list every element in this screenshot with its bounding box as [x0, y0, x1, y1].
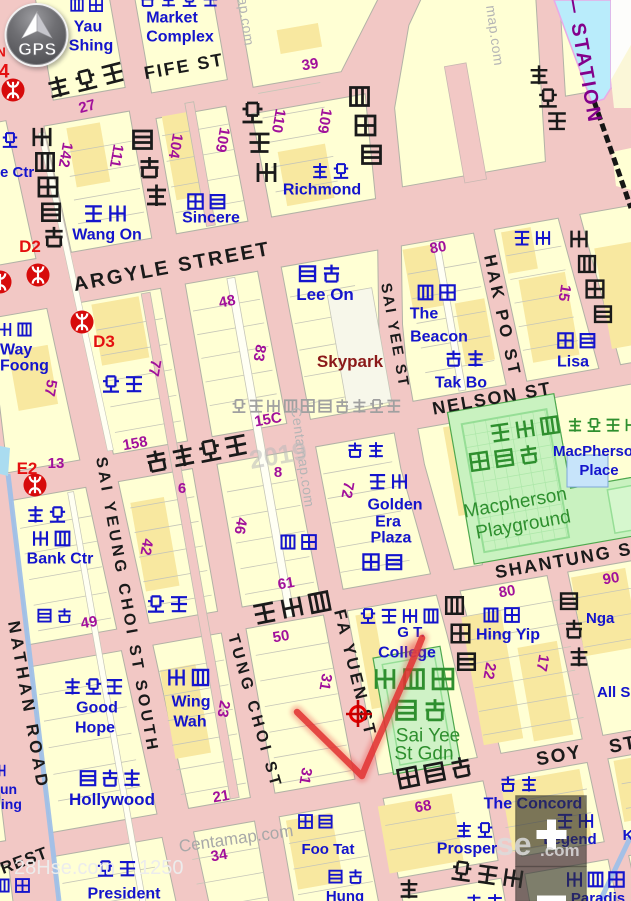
svg-text:Way: Way	[0, 342, 32, 359]
svg-text:57: 57	[40, 378, 60, 397]
svg-text:Market: Market	[146, 10, 198, 27]
svg-text:49: 49	[79, 613, 98, 633]
svg-text:Wing: Wing	[172, 694, 211, 711]
svg-text:D3: D3	[93, 332, 115, 351]
svg-text:Nga: Nga	[586, 610, 615, 627]
svg-text:Shing: Shing	[69, 38, 113, 55]
svg-text:Place: Place	[579, 462, 618, 479]
svg-text:Complex: Complex	[146, 29, 214, 46]
svg-text:Hollywood: Hollywood	[69, 790, 155, 809]
svg-text:ST: ST	[607, 732, 631, 758]
svg-text:un: un	[0, 781, 17, 797]
svg-text:Yau: Yau	[74, 19, 102, 36]
svg-text:ling: ling	[0, 796, 22, 812]
svg-text:Beacon: Beacon	[410, 329, 468, 346]
svg-text:Sincere: Sincere	[182, 210, 240, 227]
svg-text:Bank Ctr: Bank Ctr	[27, 551, 94, 568]
svg-text:80: 80	[428, 238, 447, 258]
svg-text:E2: E2	[17, 459, 38, 478]
svg-text:.com: .com	[540, 841, 580, 860]
svg-text:46: 46	[230, 516, 250, 535]
svg-text:Lee On: Lee On	[296, 285, 354, 304]
svg-text:Foo Tat: Foo Tat	[301, 841, 354, 858]
svg-text:K: K	[623, 827, 631, 844]
svg-text:6: 6	[178, 480, 186, 497]
svg-text:Wah: Wah	[173, 714, 206, 731]
svg-text:42: 42	[136, 537, 156, 556]
svg-text:se: se	[496, 826, 532, 862]
svg-text:39: 39	[300, 55, 319, 75]
svg-text:48: 48	[217, 292, 237, 312]
svg-text:31: 31	[295, 766, 315, 785]
svg-text:All S: All S	[597, 684, 630, 701]
svg-text:Hung: Hung	[326, 888, 364, 901]
svg-text:Tak Bo: Tak Bo	[435, 375, 487, 392]
svg-text:e Ctr: e Ctr	[0, 164, 34, 181]
svg-text:GPS: GPS	[18, 39, 56, 59]
svg-text:77: 77	[144, 358, 164, 377]
svg-text:St Gdn: St Gdn	[394, 744, 453, 765]
svg-text:83: 83	[249, 343, 269, 362]
svg-text:Hope: Hope	[75, 720, 115, 737]
svg-text:80: 80	[497, 582, 516, 602]
svg-text:1250: 1250	[139, 857, 184, 879]
svg-text:Skypark: Skypark	[317, 352, 384, 371]
svg-text:N: N	[0, 45, 6, 60]
svg-text:MacPherson: MacPherson	[553, 443, 631, 460]
svg-text:Lisa: Lisa	[557, 354, 589, 371]
svg-text:Wang On: Wang On	[72, 227, 142, 244]
svg-text:Golden: Golden	[367, 497, 422, 514]
svg-text:23: 23	[213, 699, 233, 718]
svg-text:Hing Yip: Hing Yip	[476, 627, 540, 644]
svg-text:21: 21	[211, 787, 230, 807]
svg-text:15: 15	[554, 283, 574, 302]
svg-text:The: The	[410, 306, 439, 323]
svg-text:4: 4	[0, 62, 10, 83]
svg-text:Era: Era	[375, 514, 401, 531]
svg-text:50: 50	[271, 627, 290, 647]
svg-text:68: 68	[413, 797, 432, 817]
svg-text:Foong: Foong	[0, 358, 49, 375]
svg-text:17: 17	[532, 653, 552, 672]
svg-text:Richmond: Richmond	[283, 182, 361, 199]
svg-text:31: 31	[315, 672, 335, 691]
svg-text:Prosper: Prosper	[437, 841, 497, 858]
svg-text:28Hse.com: 28Hse.com	[14, 857, 115, 879]
svg-text:Good: Good	[76, 700, 118, 717]
svg-text:D2: D2	[19, 237, 41, 256]
svg-text:President: President	[88, 886, 162, 901]
svg-text:72: 72	[337, 480, 357, 499]
svg-text:13: 13	[48, 455, 65, 472]
svg-text:61: 61	[276, 574, 295, 594]
svg-text:22: 22	[479, 661, 499, 680]
svg-text:90: 90	[601, 569, 620, 589]
svg-text:Plaza: Plaza	[371, 530, 412, 547]
